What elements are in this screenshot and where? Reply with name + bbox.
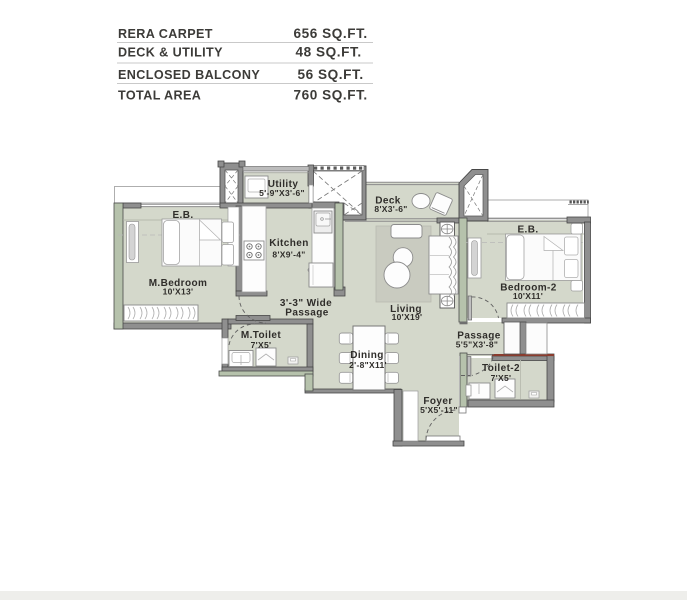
svg-text:656 SQ.FT.: 656 SQ.FT. [294, 26, 368, 41]
svg-text:5'-9"X3'-6": 5'-9"X3'-6" [259, 188, 305, 198]
svg-text:Kitchen: Kitchen [269, 238, 308, 249]
svg-text:RERA CARPET: RERA CARPET [118, 27, 213, 41]
svg-text:Passage: Passage [285, 308, 328, 319]
svg-text:TOTAL AREA: TOTAL AREA [118, 89, 201, 103]
svg-text:ENCLOSED BALCONY: ENCLOSED BALCONY [118, 68, 260, 82]
svg-text:E.B.: E.B. [172, 210, 193, 221]
svg-text:5'5"X3'-8": 5'5"X3'-8" [456, 340, 499, 350]
svg-text:7'X5': 7'X5' [491, 373, 512, 383]
svg-text:8'X3'-6": 8'X3'-6" [374, 204, 407, 214]
svg-text:E.B.: E.B. [517, 225, 538, 236]
svg-text:8'X9'-4": 8'X9'-4" [272, 250, 305, 260]
svg-text:10'X19': 10'X19' [392, 312, 423, 322]
svg-text:10'X11': 10'X11' [513, 291, 543, 301]
svg-text:5'X5'-11": 5'X5'-11" [420, 405, 458, 415]
svg-text:DECK & UTILITY: DECK & UTILITY [118, 46, 223, 60]
svg-text:760 SQ.FT.: 760 SQ.FT. [294, 88, 368, 103]
svg-text:56 SQ.FT.: 56 SQ.FT. [298, 67, 364, 82]
svg-text:48 SQ.FT.: 48 SQ.FT. [296, 45, 362, 60]
svg-text:2'-8"X11': 2'-8"X11' [349, 360, 387, 370]
svg-text:10'X13': 10'X13' [163, 287, 194, 297]
svg-text:7'X5': 7'X5' [251, 340, 272, 350]
